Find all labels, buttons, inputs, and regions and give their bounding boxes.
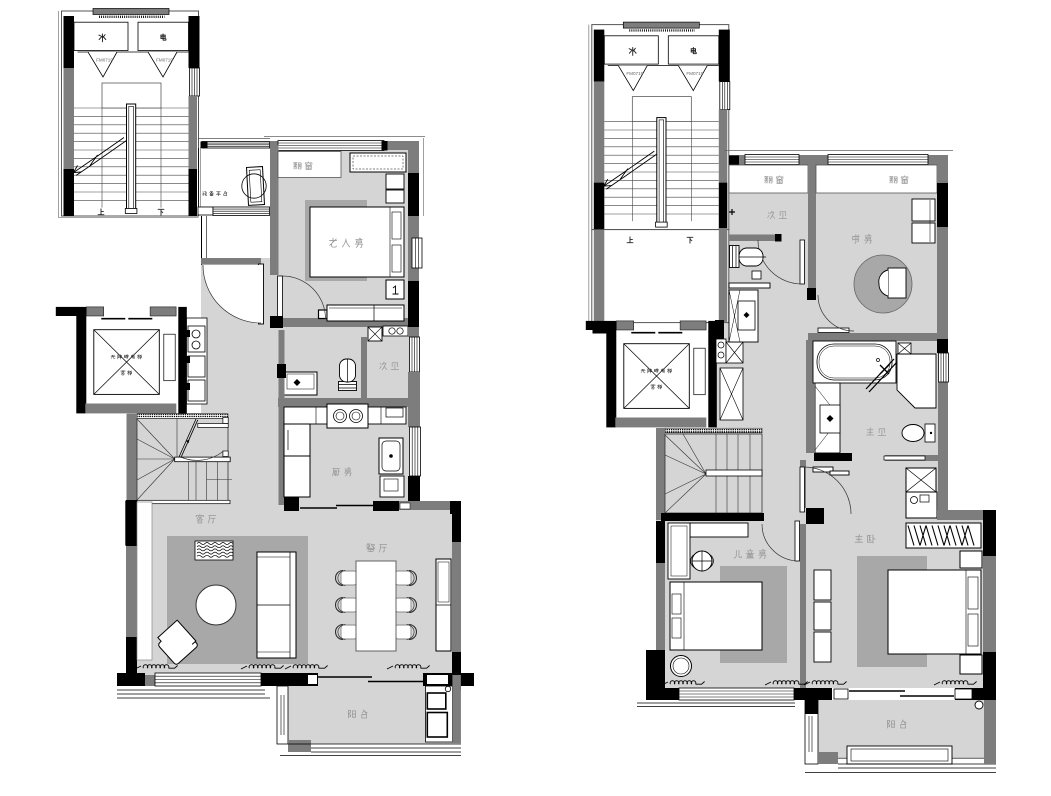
svg-text:FM0719: FM0719 [626,71,643,76]
svg-text:FM0719: FM0719 [156,58,173,63]
svg-text:FM0719: FM0719 [96,58,113,63]
svg-text:FM0719: FM0719 [686,71,703,76]
